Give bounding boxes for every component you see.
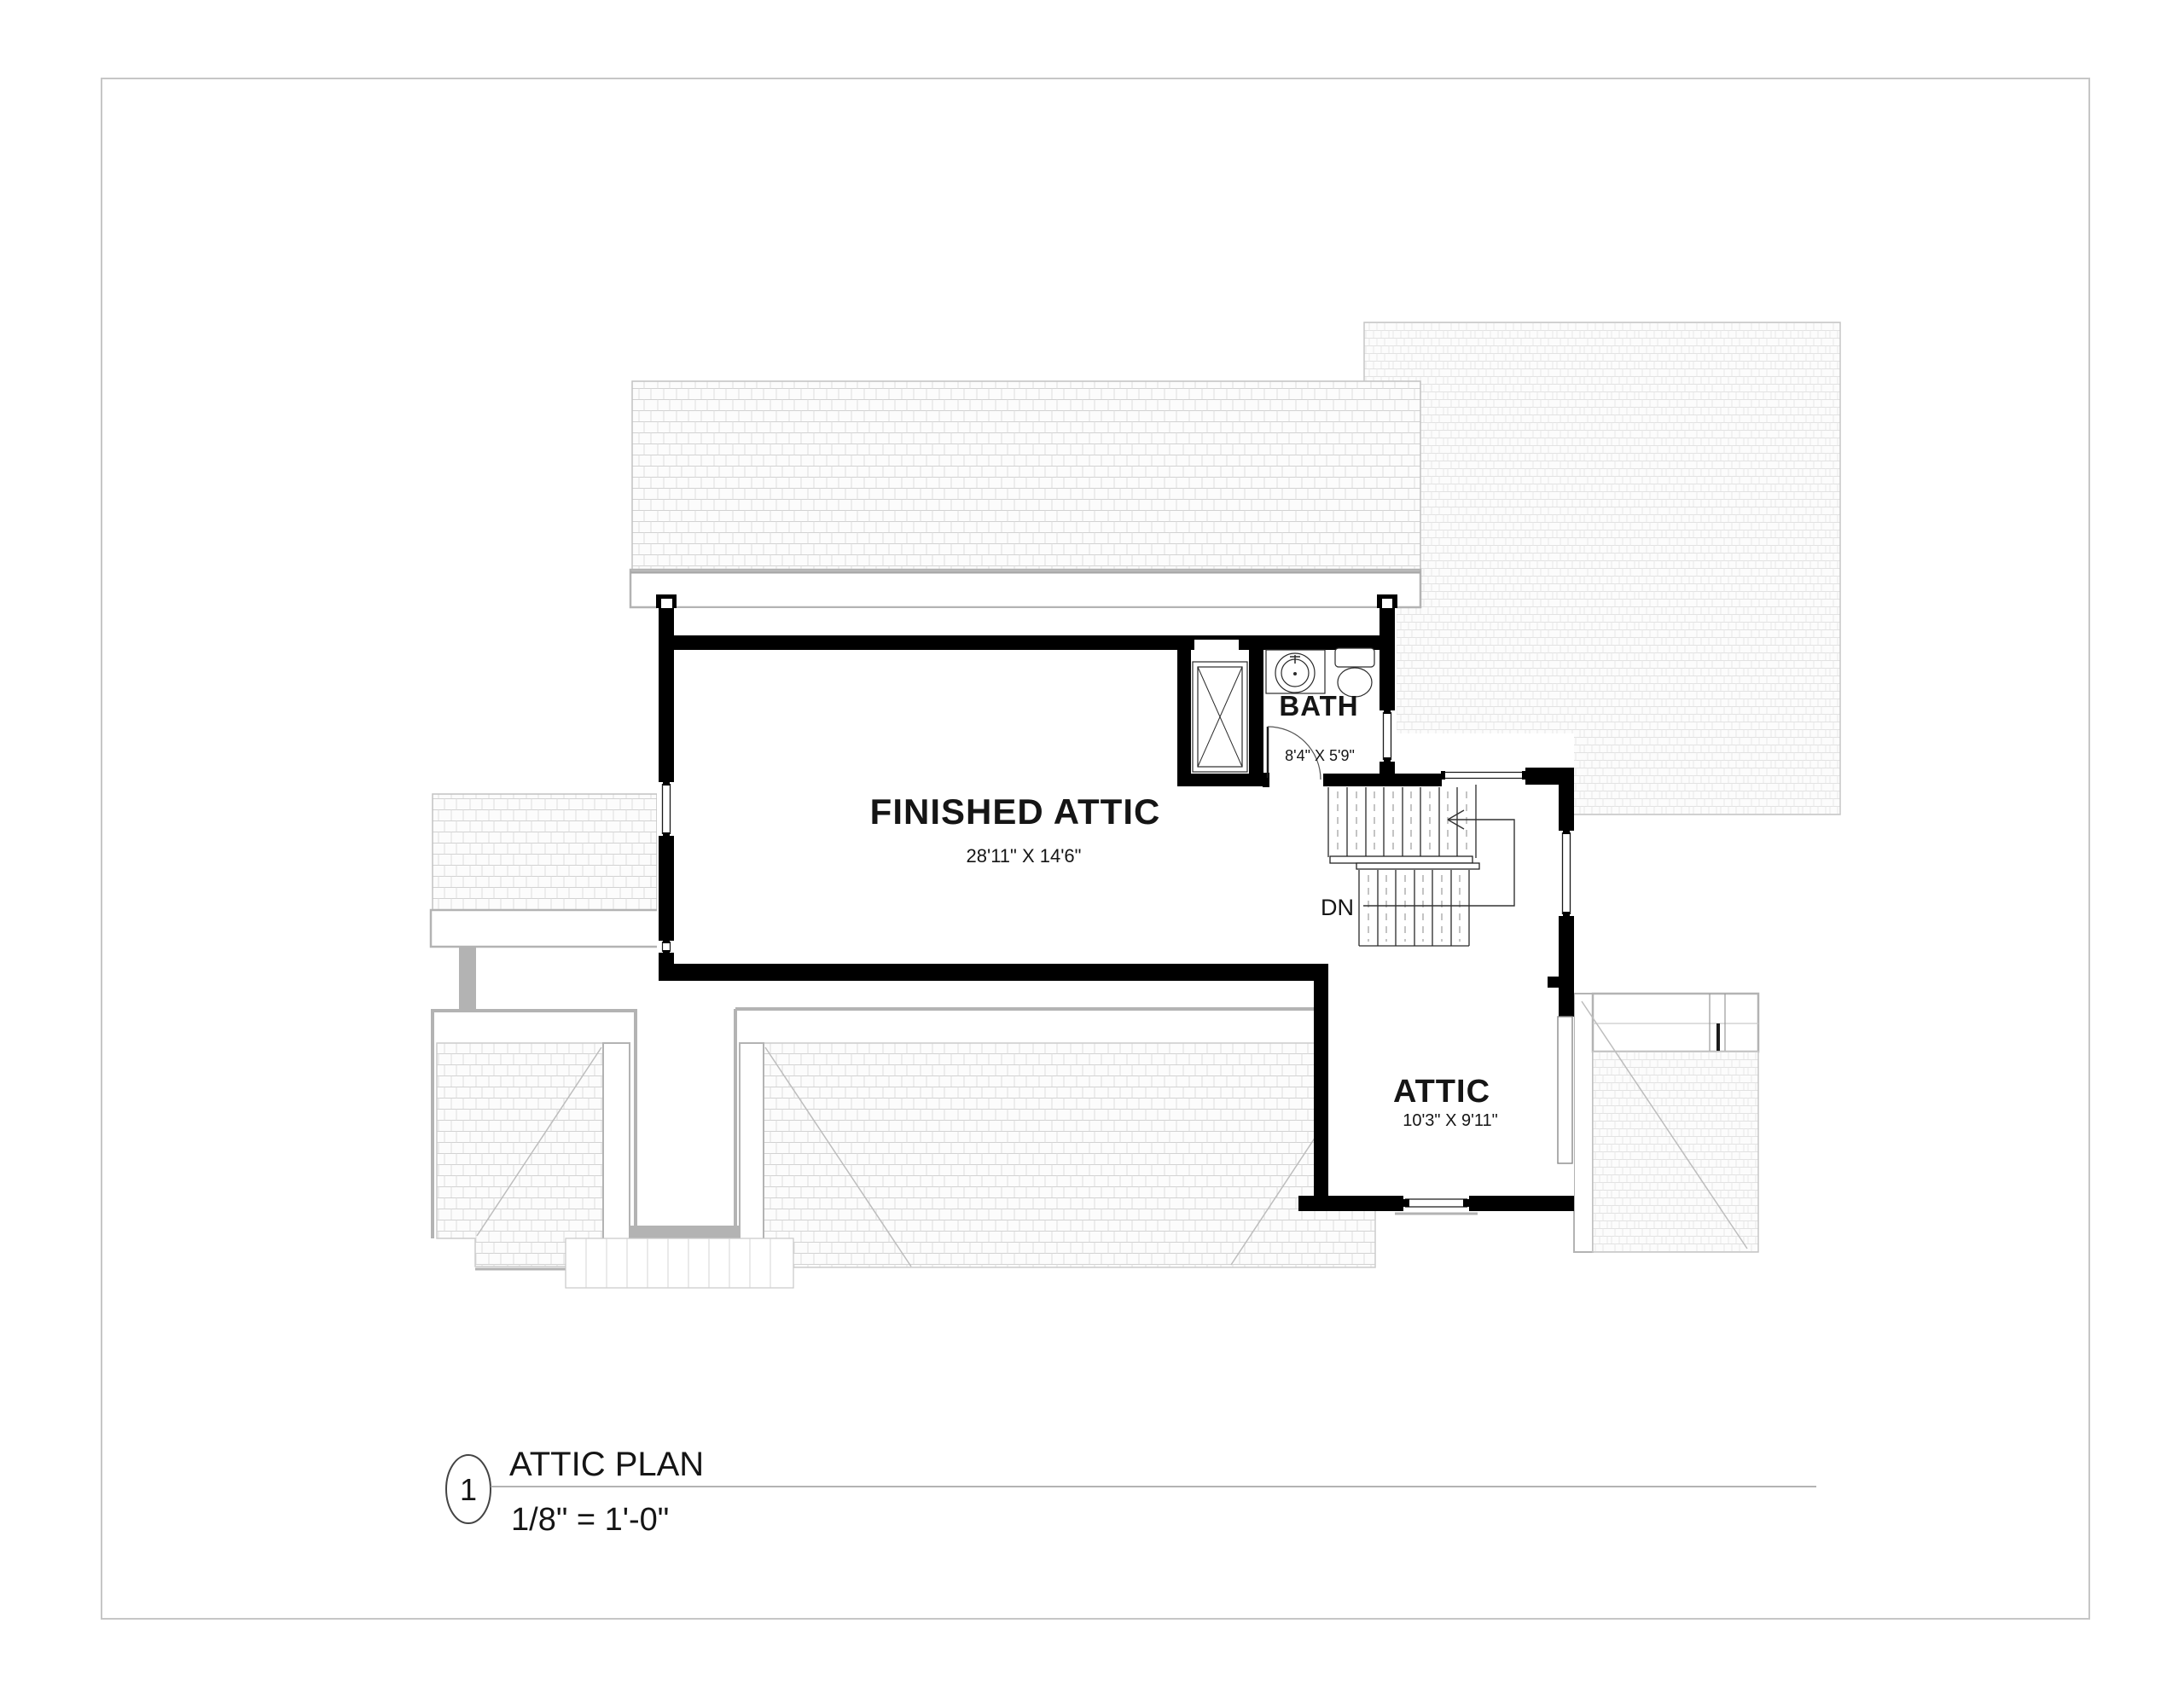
dormer-wall-strip xyxy=(603,1043,630,1269)
dim-bath: 8'4" X 5'9" xyxy=(1285,747,1355,764)
eave-band xyxy=(1593,994,1758,1052)
gutter-band-left xyxy=(431,910,661,947)
gutter-band-top xyxy=(630,570,1420,607)
window-stair-north xyxy=(1441,769,1526,781)
window-attic-east-tall xyxy=(1558,1017,1572,1163)
dormer-bridge xyxy=(630,1226,740,1238)
detail-number: 1 xyxy=(460,1472,477,1507)
window-bath-east xyxy=(1380,710,1395,762)
roof-top-center xyxy=(630,381,1420,607)
ridge-tick xyxy=(1716,1023,1720,1051)
wall-shower-west xyxy=(1177,648,1191,786)
stair-dn-label: DN xyxy=(1321,895,1354,920)
floor-plan-sheet: DN FINISHED ATTIC xyxy=(0,0,2184,1687)
dormer-deck xyxy=(566,1238,793,1288)
stair-rail-upper xyxy=(1330,856,1472,863)
roof-lower-right xyxy=(1574,994,1758,1252)
label-attic: ATTIC xyxy=(1393,1074,1490,1110)
wall-shower-east xyxy=(1249,650,1263,774)
wall-attic-east xyxy=(1559,770,1574,831)
dormer-wall-strip xyxy=(740,1043,764,1269)
window-attic-south xyxy=(1395,1196,1478,1214)
wall-finished-attic-south xyxy=(659,964,1328,981)
roof-dormer-left xyxy=(433,1011,636,1269)
label-bath: BATH xyxy=(1279,690,1358,722)
window-attic-east xyxy=(1559,830,1574,916)
wall-north xyxy=(674,635,1380,650)
roof-connector-stub xyxy=(459,947,476,1011)
wall-west xyxy=(659,608,674,782)
post-anchor-east xyxy=(1377,594,1397,608)
eave-strip xyxy=(1574,994,1593,1252)
drawing-title: ATTIC PLAN xyxy=(509,1446,704,1483)
dim-attic: 10'3" X 9'11" xyxy=(1403,1111,1498,1130)
post-anchor-west xyxy=(656,594,677,608)
dim-finished-attic: 28'11" X 14'6" xyxy=(967,845,1082,867)
stair-rail-lower xyxy=(1356,863,1479,869)
wall-bath-east xyxy=(1380,608,1395,710)
wall-bath-south xyxy=(1177,774,1265,786)
window-west-lower xyxy=(659,940,674,954)
drawing-scale: 1/8" = 1'-0" xyxy=(511,1502,669,1538)
wall-attic-west xyxy=(1314,981,1328,1196)
sink xyxy=(1266,650,1325,693)
wall-post xyxy=(1548,977,1559,988)
window-west-upper xyxy=(659,780,674,838)
wall-attic-south xyxy=(1298,1196,1403,1211)
label-finished-attic: FINISHED ATTIC xyxy=(870,791,1161,832)
